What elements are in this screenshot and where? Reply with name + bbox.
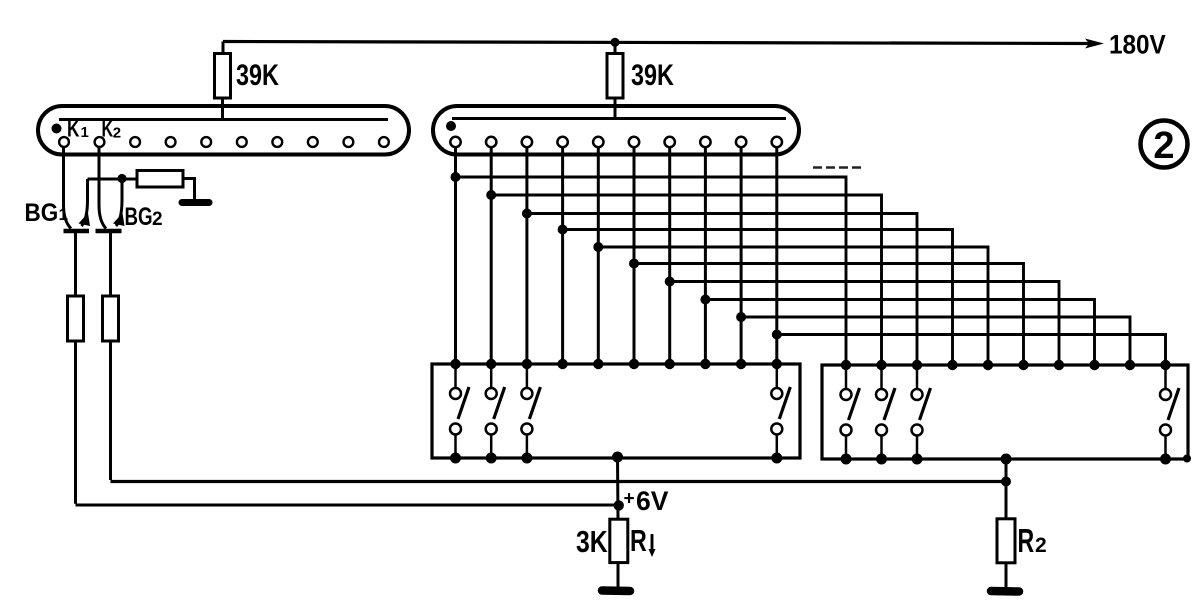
svg-text:2: 2 bbox=[152, 209, 163, 230]
svg-text:+: + bbox=[624, 489, 635, 510]
svg-text:39K: 39K bbox=[236, 58, 279, 91]
svg-text:2: 2 bbox=[1035, 534, 1047, 557]
svg-text:180V: 180V bbox=[1109, 30, 1166, 59]
svg-text:BG: BG bbox=[25, 199, 59, 227]
svg-text:1: 1 bbox=[59, 205, 68, 224]
svg-text:R: R bbox=[630, 523, 647, 558]
svg-text:6V: 6V bbox=[636, 486, 669, 516]
svg-text:BG: BG bbox=[125, 202, 153, 230]
svg-text:39K: 39K bbox=[631, 58, 674, 91]
svg-text:R: R bbox=[1018, 523, 1035, 560]
svg-text:K: K bbox=[67, 117, 80, 142]
svg-text:2: 2 bbox=[1153, 125, 1174, 167]
svg-text:1: 1 bbox=[81, 124, 89, 141]
svg-text:2: 2 bbox=[113, 125, 121, 142]
svg-text:3K: 3K bbox=[576, 524, 608, 558]
